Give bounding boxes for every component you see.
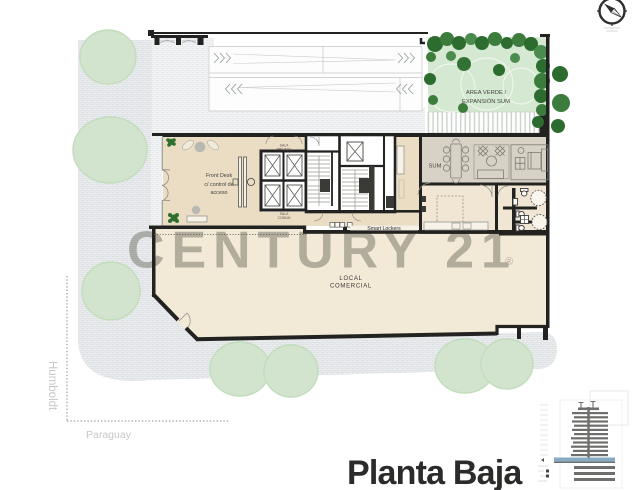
svg-text:c/ control de: c/ control de bbox=[204, 182, 233, 188]
svg-text:Paraguay: Paraguay bbox=[86, 429, 132, 441]
svg-text:acceso: acceso bbox=[210, 190, 227, 196]
svg-text:PRIVADA: PRIVADA bbox=[277, 148, 292, 152]
svg-text:Planta Baja: Planta Baja bbox=[347, 454, 523, 490]
svg-text:SUM: SUM bbox=[429, 164, 442, 170]
svg-text:COMERCIAL: COMERCIAL bbox=[330, 284, 372, 290]
svg-text:LOCAL: LOCAL bbox=[339, 276, 362, 282]
svg-text:Humboldt: Humboldt bbox=[46, 361, 58, 411]
svg-text:COMUN: COMUN bbox=[278, 216, 291, 220]
svg-text:Smart Lockers: Smart Lockers bbox=[367, 226, 401, 232]
svg-text:AREA VERDE /: AREA VERDE / bbox=[466, 90, 507, 96]
svg-text:Front Desk: Front Desk bbox=[206, 173, 233, 179]
svg-text:®: ® bbox=[505, 256, 513, 268]
svg-text:EXPANSIÓN SUM: EXPANSIÓN SUM bbox=[462, 98, 510, 105]
